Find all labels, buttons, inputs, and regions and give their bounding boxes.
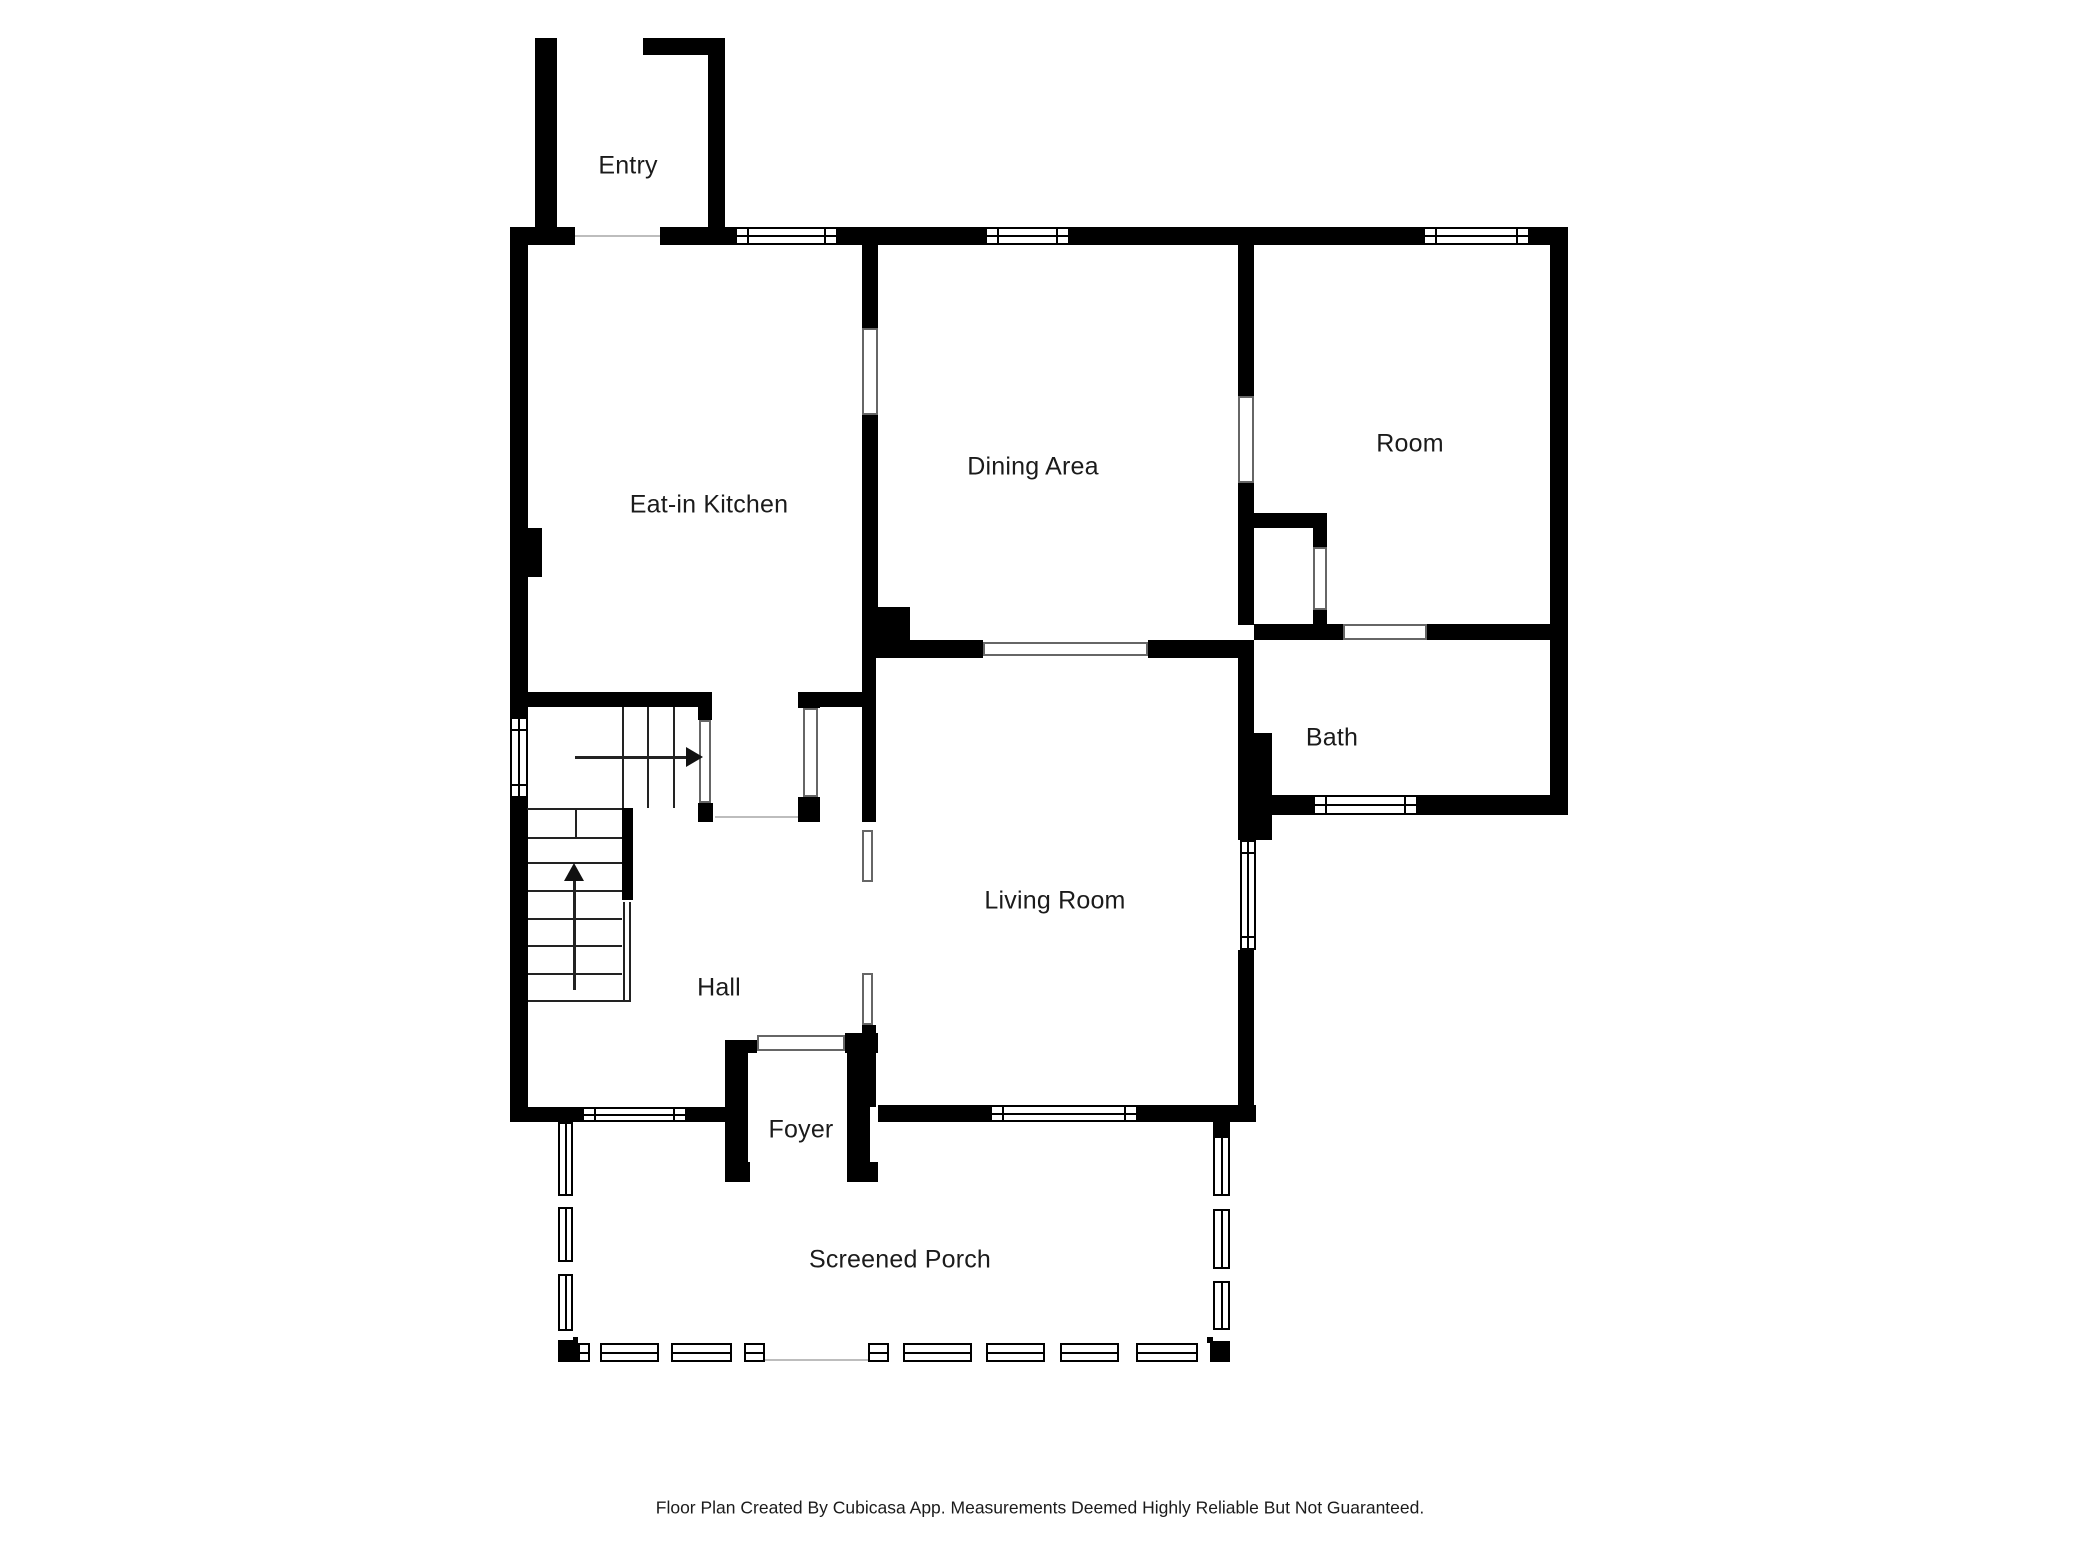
wall-segment [862, 415, 878, 607]
wall-segment [1238, 950, 1254, 1122]
wall-segment [798, 797, 820, 822]
window-glass-line [584, 1114, 685, 1116]
wall-segment [725, 1162, 750, 1182]
wall-segment [798, 692, 820, 708]
window-end-bar [1516, 229, 1518, 243]
room-label-foyer: Foyer [769, 1116, 834, 1145]
cased-opening [862, 328, 878, 415]
wall-segment [1313, 610, 1327, 624]
window-glass-line [992, 1113, 1136, 1115]
stair-tread-line [528, 837, 622, 839]
window-end-bar [1325, 797, 1327, 813]
cased-opening [983, 642, 1148, 656]
window-end-bar [1056, 229, 1058, 243]
cased-opening [575, 228, 660, 244]
stair-tread-line [575, 808, 577, 837]
screen-mullion [558, 1260, 573, 1276]
room-label-bath: Bath [1306, 724, 1358, 753]
room-label-dining-area: Dining Area [967, 453, 1098, 482]
wall-segment [875, 640, 983, 658]
wall-segment [725, 1040, 757, 1053]
window-end-bar [1002, 1107, 1004, 1120]
window [1313, 795, 1418, 815]
cased-opening [1343, 624, 1427, 640]
screen-mullion [1196, 1343, 1212, 1362]
wall-segment [878, 1105, 990, 1122]
cased-opening [862, 973, 873, 1025]
wall-segment [1138, 1105, 1256, 1122]
wall-segment [1252, 513, 1327, 528]
screen-center-line [565, 1124, 567, 1336]
porch-screen-wall [868, 1343, 1207, 1362]
screen-mullion [1213, 1267, 1230, 1283]
wall-segment [528, 528, 542, 577]
wall-segment [510, 227, 528, 717]
window-end-bar [1124, 1107, 1126, 1120]
wall-segment [527, 692, 712, 707]
window-end-bar [824, 229, 826, 243]
opening-floor-line [575, 235, 660, 237]
wall-segment [687, 1107, 730, 1122]
screen-center-line [1221, 1138, 1223, 1335]
window [990, 1105, 1138, 1122]
screen-mullion [1213, 1328, 1230, 1343]
screen-mullion [558, 1329, 573, 1342]
room-label-entry: Entry [598, 152, 657, 181]
cased-opening [862, 830, 873, 882]
window [985, 227, 1070, 245]
wall-segment [535, 38, 557, 245]
wall-segment [1070, 227, 1423, 245]
stair-direction-arrow-icon [564, 863, 584, 881]
wall-segment [852, 1162, 878, 1182]
window-end-bar [1242, 852, 1254, 854]
room-label-eat-in-kitchen: Eat-in Kitchen [630, 491, 788, 520]
screen-mullion [1213, 1194, 1230, 1211]
wall-segment [820, 692, 862, 707]
wall-segment [862, 245, 878, 328]
stair-tread-line [527, 808, 622, 810]
porch-screen-wall [1213, 1136, 1230, 1337]
cased-opening [1313, 547, 1327, 610]
window-end-bar [747, 229, 749, 243]
room-label-room: Room [1376, 430, 1444, 459]
floorplan-page: EntryEat-in KitchenDining AreaRoomBathLi… [0, 0, 2080, 1560]
wall-segment [510, 1107, 582, 1122]
window [582, 1107, 687, 1122]
cased-opening [715, 812, 798, 822]
screen-center-line [870, 1352, 1205, 1354]
window-end-bar [1242, 936, 1254, 938]
screen-mullion [970, 1343, 988, 1362]
window-end-bar [512, 729, 526, 731]
window-end-bar [1435, 229, 1437, 243]
window [510, 717, 528, 798]
screen-mullion [657, 1343, 673, 1362]
wall-segment [1238, 483, 1254, 625]
window-glass-line [1247, 842, 1249, 948]
wall-segment [1427, 624, 1568, 640]
cased-opening [757, 1035, 845, 1051]
window-glass-line [1315, 804, 1416, 806]
footer-note: Floor Plan Created By Cubicasa App. Meas… [656, 1498, 1424, 1519]
wall-segment [1313, 528, 1327, 547]
screen-mullion [588, 1343, 602, 1362]
wall-segment [845, 1033, 878, 1053]
wall-segment [1238, 733, 1272, 840]
window-end-bar [673, 1109, 675, 1120]
window-glass-line [1425, 235, 1528, 237]
cased-opening [803, 708, 818, 797]
stair-direction-line [573, 880, 576, 990]
wall-segment [1254, 624, 1343, 640]
stair-tread-line [528, 1000, 631, 1002]
window-glass-line [737, 235, 836, 237]
screen-mullion [1117, 1343, 1138, 1362]
window [735, 227, 838, 245]
wall-segment [1550, 227, 1568, 815]
wall-segment [862, 658, 876, 822]
screen-mullion [1043, 1343, 1062, 1362]
wall-segment [510, 798, 528, 1122]
wall-segment [1213, 1122, 1230, 1136]
window [1240, 840, 1256, 950]
wall-segment [1238, 245, 1254, 396]
window-end-bar [512, 784, 526, 786]
wall-segment [1148, 640, 1238, 658]
room-label-hall: Hall [697, 974, 741, 1003]
room-label-living-room: Living Room [984, 887, 1125, 916]
porch-screen-wall [558, 1122, 573, 1338]
room-label-screened-porch: Screened Porch [809, 1246, 991, 1275]
window-end-bar [997, 229, 999, 243]
wall-segment [622, 808, 633, 900]
window [1423, 227, 1530, 245]
cased-opening [765, 1358, 868, 1362]
screen-mullion [887, 1343, 905, 1362]
opening-floor-line [765, 1359, 868, 1361]
porch-screen-wall [578, 1343, 765, 1362]
stair-railing [623, 902, 631, 1000]
wall-segment [708, 38, 725, 245]
opening-floor-line [715, 816, 798, 818]
floorplan-canvas [0, 0, 2080, 1560]
wall-segment [698, 705, 712, 720]
stair-direction-arrow-icon [686, 747, 703, 767]
cased-opening [1238, 396, 1254, 483]
wall-segment [698, 803, 713, 822]
window-end-bar [594, 1109, 596, 1120]
window-end-bar [1404, 797, 1406, 813]
wall-segment [1238, 640, 1254, 735]
screen-mullion [558, 1194, 573, 1209]
wall-segment [838, 227, 985, 245]
stair-direction-line [575, 756, 687, 759]
wall-segment [1418, 795, 1568, 815]
screen-mullion [730, 1343, 746, 1362]
